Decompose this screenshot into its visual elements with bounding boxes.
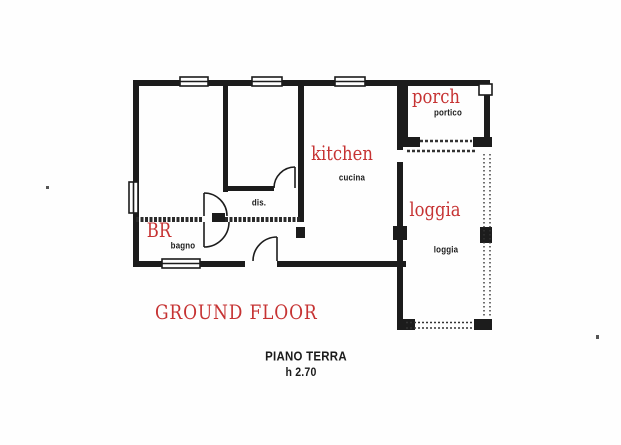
- room-label-loggia-it: loggia: [434, 246, 458, 255]
- room-label-kitchen-it: cucina: [339, 174, 365, 183]
- wall-room2-bottom: [223, 186, 274, 191]
- wall-bedroom-divider: [223, 86, 228, 192]
- speck: [596, 335, 599, 339]
- wall-door-mullion: [212, 213, 225, 222]
- loggia-pillar-se: [474, 319, 492, 330]
- caption-floor-it: PIANO TERRA: [265, 350, 347, 363]
- room-label-loggia-en: loggia: [409, 199, 460, 219]
- room-label-bathroom-it: bagno: [171, 242, 196, 251]
- wall-kitchen-left: [298, 86, 304, 222]
- wall-bottom-right: [277, 261, 406, 267]
- pilaster: [393, 226, 407, 240]
- wall-left: [133, 80, 139, 267]
- wall-kitchen-door-jamb: [296, 227, 305, 238]
- door-swing-bathroom: [204, 222, 229, 247]
- window-symbol: [162, 259, 200, 268]
- porch-sill-block-left: [397, 137, 420, 147]
- room-label-kitchen-en: kitchen: [311, 143, 373, 163]
- open-boundaries: [406, 141, 490, 328]
- porch-corner-notch: [479, 84, 492, 95]
- room-label-bathroom-en: BR: [147, 220, 171, 240]
- speck: [46, 186, 49, 189]
- window-symbol: [252, 77, 282, 86]
- floorplan-scan-page: porch portico kitchen cucina loggia logg…: [0, 0, 621, 445]
- window-symbol: [335, 77, 365, 86]
- caption-ceiling-height: h 2.70: [285, 366, 316, 378]
- room-label-porch-it: portico: [434, 109, 462, 118]
- door-swing-room2: [274, 167, 295, 188]
- caption-floor-en: GROUND FLOOR: [155, 302, 318, 322]
- wall-kitchen-right-mid: [397, 162, 403, 226]
- window-symbol: [129, 182, 138, 213]
- room-label-porch-en: porch: [412, 86, 460, 106]
- wall-loggia-left: [397, 240, 403, 330]
- room-label-hall-it: dis.: [252, 199, 266, 208]
- window-symbol: [180, 77, 208, 86]
- wall-porch-left: [403, 80, 408, 140]
- door-swing-bedroom: [204, 193, 227, 216]
- porch-sill-block-right: [473, 137, 492, 147]
- door-swing-entrance: [253, 237, 277, 261]
